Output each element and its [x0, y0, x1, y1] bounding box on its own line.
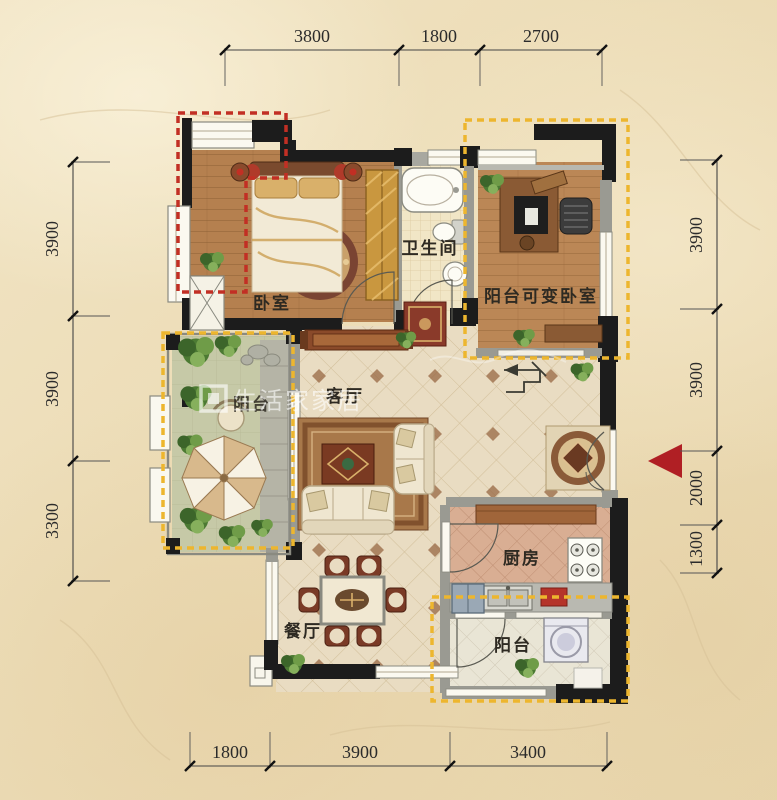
floor-mat	[574, 668, 602, 688]
patio-umbrella	[182, 436, 266, 520]
dim-right-3: 2000	[686, 470, 706, 506]
office-chair	[560, 198, 592, 234]
dim-right-4: 1300	[686, 531, 706, 567]
kitchen-label: 厨房	[503, 548, 541, 568]
dim-right-1: 3900	[686, 217, 706, 253]
floorplan-drawing: 卧室 卫生间 阳台可变卧室 客厅 厨房 阳台 餐厅 阳台 生活家家居	[0, 0, 777, 800]
dim-left-3: 3300	[42, 503, 62, 539]
left-dimension	[68, 157, 110, 586]
dim-bottom-2: 3900	[342, 742, 378, 762]
dim-bottom-1: 1800	[212, 742, 248, 762]
bottom-dimension	[185, 732, 612, 771]
bedroom-label: 卧室	[253, 293, 291, 313]
bar-counter	[476, 505, 596, 524]
watermark-text: 生活家家居	[233, 388, 363, 415]
entry-arrow	[648, 444, 682, 478]
sofa-pillow	[306, 490, 327, 511]
bench	[545, 325, 602, 342]
dim-left-2: 3900	[42, 371, 62, 407]
dim-top-3: 2700	[523, 26, 559, 46]
dining-room-label: 餐厅	[284, 621, 322, 641]
bed-headboard	[250, 162, 344, 176]
dim-top-2: 1800	[421, 26, 457, 46]
dim-right-2: 3900	[686, 362, 706, 398]
dim-left-1: 3900	[42, 221, 62, 257]
dim-bottom-3: 3400	[510, 742, 546, 762]
sofa-pillow	[369, 491, 390, 512]
dim-top-1: 3800	[294, 26, 330, 46]
floorplan-page: 卧室 卫生间 阳台可变卧室 客厅 厨房 阳台 餐厅 阳台 生活家家居	[0, 0, 777, 800]
bathroom-label: 卫生间	[402, 238, 459, 258]
top-dimension	[220, 45, 607, 86]
convertible-room-label: 阳台可变卧室	[484, 286, 598, 306]
balcony-bottom-label: 阳台	[494, 635, 532, 655]
stove	[568, 538, 602, 582]
